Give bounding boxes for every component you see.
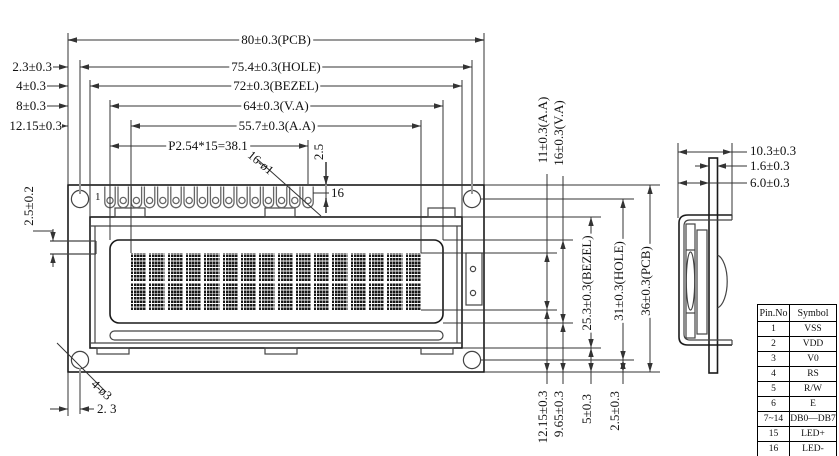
pin-number: 5 (758, 382, 790, 397)
lcd-char-cell (296, 283, 311, 311)
bezel-tab (265, 208, 295, 217)
dim-pin-pitch: P2.54*15=38.1 (166, 139, 250, 153)
lcd-char-cell (168, 253, 183, 281)
dim-va-bottom-offset: 9.65±0.3 (552, 391, 566, 437)
pin-table-row: 6E (758, 397, 837, 412)
bezel-tab (421, 348, 453, 354)
dim-hole-corner-offset: 2. 3 (97, 401, 117, 417)
dim-va-offset: 8±0.3 (0, 98, 46, 114)
pin-symbol: R/W (790, 382, 837, 397)
lcd-char-cell (278, 283, 293, 311)
dim-pcb-width: 80±0.3(PCB) (239, 33, 313, 47)
lcd-char-cell (406, 283, 421, 311)
dim-bezel-offset: 4±0.3 (0, 78, 46, 94)
pin-number: 2 (758, 337, 790, 352)
dim-hole-height: 31±0.3(HOLE) (612, 239, 626, 323)
pin-16-label: 16 (331, 185, 344, 201)
gray-reference-lines (68, 40, 484, 414)
lcd-char-cell (314, 283, 329, 311)
pin-table-row: 15LED+ (758, 427, 837, 442)
pin-pad (250, 187, 260, 208)
dim-pin-edge: 2.5 (312, 144, 326, 160)
lcd-char-cell (369, 283, 384, 311)
lcd-char-cell (387, 283, 402, 311)
pin-number: 4 (758, 367, 790, 382)
pin-table-header-pin: Pin.No (758, 305, 790, 322)
dim-bezel-thickness: 6.0±0.3 (750, 175, 790, 191)
pin-pad (263, 187, 273, 208)
lcd-char-cell (204, 253, 219, 281)
pin-table: Pin.No Symbol 1VSS2VDD3V04RS5R/W6E7~14DB… (757, 304, 837, 456)
pin-table-header-symbol: Symbol (790, 305, 837, 322)
dim-aa-width: 55.7±0.3(A.A) (237, 119, 318, 133)
side-view (679, 158, 732, 373)
pin-number: 3 (758, 352, 790, 367)
pin-table-row: 5R/W (758, 382, 837, 397)
pin-number: 1 (758, 322, 790, 337)
pin-symbol: VDD (790, 337, 837, 352)
pin-symbol: RS (790, 367, 837, 382)
lcd-char-cell (387, 253, 402, 281)
lcd-char-cell (259, 283, 274, 311)
dim-bezel-width: 72±0.3(BEZEL) (231, 79, 320, 93)
lcd-char-cell (406, 253, 421, 281)
pin-table-header-row: Pin.No Symbol (758, 305, 837, 322)
pin-pad (210, 187, 220, 208)
dim-pcb-thickness: 1.6±0.3 (750, 158, 790, 174)
pin-pad (158, 187, 168, 208)
pin-pad (184, 187, 194, 208)
lcd-char-cell (223, 253, 238, 281)
backlight-tab (466, 253, 482, 305)
lcd-char-cell (332, 283, 347, 311)
pcb-side (709, 158, 718, 373)
lcd-char-cell (186, 253, 201, 281)
lcd-char-cell (241, 253, 256, 281)
mounting-hole (463, 351, 480, 368)
slot-bar (110, 331, 443, 340)
glass-stack (686, 224, 695, 338)
drawing-linework (0, 0, 839, 456)
dim-bezel-height: 25.3±0.3(BEZEL) (580, 233, 594, 332)
pin-symbol: DB0—DB7 (790, 412, 837, 427)
lcd-char-cell (168, 283, 183, 311)
pin-symbol: VSS (790, 322, 837, 337)
lcd-char-cell (223, 283, 238, 311)
lcd-char-cell (369, 253, 384, 281)
dim-hole-offset: 2.3±0.3 (0, 59, 52, 75)
dim-hole-width: 75.4±0.3(HOLE) (229, 60, 322, 74)
pin-pad (276, 187, 286, 208)
lcd-char-cell (149, 283, 164, 311)
pin-number: 6 (758, 397, 790, 412)
bezel-side (679, 215, 732, 345)
pin-pad (224, 187, 234, 208)
pin-pads (105, 187, 313, 208)
pin-pad (237, 187, 247, 208)
pin-pad (144, 187, 154, 208)
lcd-char-cell (332, 253, 347, 281)
lcd-char-cell (296, 253, 311, 281)
pin-pad (118, 187, 128, 208)
lcd-char-cell (259, 253, 274, 281)
pin-number: 15 (758, 427, 790, 442)
bezel-tab (265, 348, 297, 354)
bezel-tab (428, 208, 455, 217)
pin-table-row: 3V0 (758, 352, 837, 367)
lcd-char-cell (351, 253, 366, 281)
dim-aa-height: 11±0.3(A.A) (536, 97, 550, 164)
pin-number: 16 (758, 442, 790, 456)
dim-va-width: 64±0.3(V.A) (241, 99, 310, 113)
lcd-char-cell (131, 283, 146, 311)
pin-number: 7~14 (758, 412, 790, 427)
dim-left-step: 2.5±0.2 (22, 186, 36, 226)
lcd-char-cell (149, 253, 164, 281)
pin-symbol: LED- (790, 442, 837, 456)
pin-table-row: 16LED- (758, 442, 837, 456)
lcd-char-cell (186, 283, 201, 311)
dimension-lines (33, 33, 747, 416)
lcd-module-drawing: 80±0.3(PCB) 75.4±0.3(HOLE) 72±0.3(BEZEL)… (0, 0, 839, 456)
pin-symbol: V0 (790, 352, 837, 367)
dim-bezel-bottom-offset: 5±0.3 (580, 394, 594, 424)
lcd-char-cell (204, 283, 219, 311)
lcd-char-cell (351, 283, 366, 311)
pin-table-row: 4RS (758, 367, 837, 382)
pin-table-row: 7~14DB0—DB7 (758, 412, 837, 427)
lcd-char-cell (314, 253, 329, 281)
dim-va-height: 16±0.3(V.A) (552, 100, 566, 165)
dim-total-thickness: 10.3±0.3 (750, 143, 796, 159)
lcd-char-cell (241, 283, 256, 311)
bezel-tab (115, 208, 145, 217)
pin-pad (131, 187, 141, 208)
component-bulge (718, 255, 728, 308)
pin-table-row: 2VDD (758, 337, 837, 352)
bezel-tab (97, 348, 129, 354)
dim-hole-bottom-offset: 2.5±0.3 (608, 391, 622, 431)
pin-pad (171, 187, 181, 208)
lcd-char-cell (131, 253, 146, 281)
pin-pad (197, 187, 207, 208)
dim-aa-bottom-offset: 12.15±0.3 (536, 391, 550, 444)
pin-symbol: LED+ (790, 427, 837, 442)
dim-aa-offset: 12.15±0.3 (0, 118, 62, 134)
pin-table-row: 1VSS (758, 322, 837, 337)
dim-pcb-height: 36±0.3(PCB) (639, 244, 653, 318)
pin-1-label: 1 (95, 191, 101, 203)
lcd-character-matrix (131, 253, 421, 310)
backlight-layer (697, 230, 707, 334)
pin-symbol: E (790, 397, 837, 412)
lcd-char-cell (278, 253, 293, 281)
